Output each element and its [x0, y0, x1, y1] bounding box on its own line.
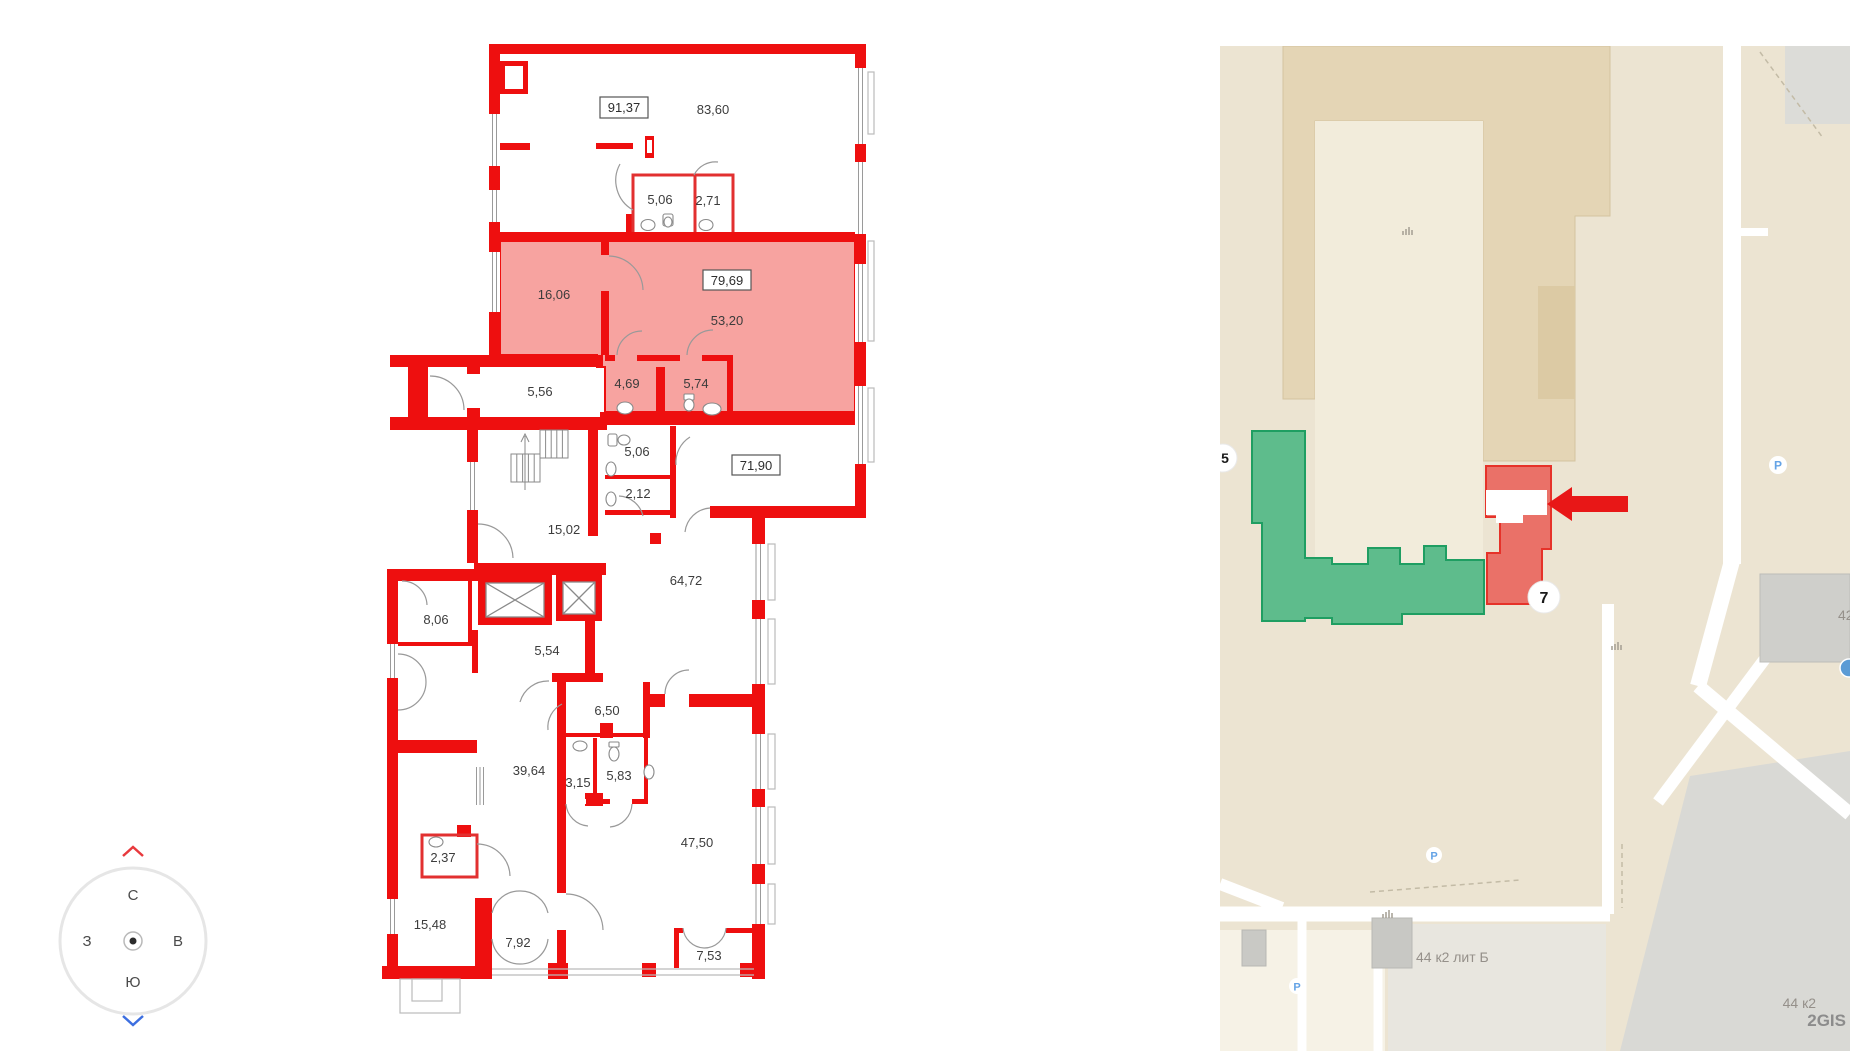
room-area-label: 6,50: [594, 703, 619, 718]
room-area-label: 15,48: [414, 917, 447, 932]
room-area-label: 3,15: [565, 775, 590, 790]
compass-south-label: Ю: [125, 974, 140, 991]
room-area-label: 8,06: [423, 612, 448, 627]
highlighted-unit-area[interactable]: [500, 241, 855, 412]
unit-label: 71,90: [740, 458, 773, 473]
room-area-label: 5,06: [647, 192, 672, 207]
parking-icon: Р: [1430, 851, 1437, 863]
section-badge-7[interactable]: 7: [1528, 581, 1560, 613]
north-chevron-icon: [123, 847, 143, 856]
stairs: [511, 430, 568, 490]
room-area-label: 2,12: [625, 486, 650, 501]
room-area-label: 47,50: [681, 835, 714, 850]
compass: С Ю З В: [45, 840, 225, 1032]
exterior-walls: [382, 44, 866, 979]
map-canvas[interactable]: 7 5 Р Р Р 44 к2 лит Б 44 к2 42 2GIS: [1220, 46, 1850, 1051]
house-number-label: 42: [1838, 607, 1850, 623]
highlighted-unit-marker: [1486, 490, 1547, 515]
unit-label: 91,37: [608, 100, 641, 115]
compass-north-label: С: [128, 887, 139, 904]
windows: [387, 68, 866, 934]
parking-icon: Р: [1774, 459, 1782, 473]
room-area-label: 5,56: [527, 384, 552, 399]
twogis-watermark: 2GIS: [1807, 1011, 1846, 1030]
compass-rose: С Ю З В: [45, 840, 225, 1032]
room-area-label: 15,02: [548, 522, 581, 537]
compass-west-label: З: [82, 933, 91, 950]
room-area-label: 4,69: [614, 376, 639, 391]
location-map[interactable]: 7 5 Р Р Р 44 к2 лит Б 44 к2 42 2GIS: [1220, 46, 1850, 1051]
room-area-label: 5,54: [534, 643, 559, 658]
room-area-label: 7,92: [505, 935, 530, 950]
room-area-label: 5,06: [624, 444, 649, 459]
unit-label-highlighted: 79,69: [711, 273, 744, 288]
building-address-label: 44 к2 лит Б: [1416, 949, 1489, 965]
parking-icon: Р: [1293, 982, 1300, 994]
elevators: [486, 582, 595, 617]
south-chevron-icon: [123, 1016, 143, 1025]
room-area-label: 7,53: [696, 948, 721, 963]
room-area-label: 53,20: [711, 313, 744, 328]
room-area-label: 39,64: [513, 763, 546, 778]
compass-hub-dot: [130, 938, 137, 945]
floor-plan: 91,37 79,69 71,90 83,60 5,06 2,71 16,06 …: [380, 44, 880, 1034]
room-area-label: 83,60: [697, 102, 730, 117]
room-area-label: 2,71: [695, 193, 720, 208]
room-area-label: 5,83: [606, 768, 631, 783]
room-area-label: 64,72: [670, 573, 703, 588]
listing-view: 91,37 79,69 71,90 83,60 5,06 2,71 16,06 …: [0, 0, 1872, 1062]
building-address-short: 44 к2: [1783, 995, 1817, 1011]
svg-text:7: 7: [1540, 590, 1549, 607]
compass-east-label: В: [173, 933, 183, 950]
room-area-label: 16,06: [538, 287, 571, 302]
svg-text:5: 5: [1221, 450, 1229, 466]
room-area-label: 5,74: [683, 376, 708, 391]
room-area-label: 2,37: [430, 850, 455, 865]
floor-plan-drawing: 91,37 79,69 71,90 83,60 5,06 2,71 16,06 …: [380, 44, 880, 1034]
